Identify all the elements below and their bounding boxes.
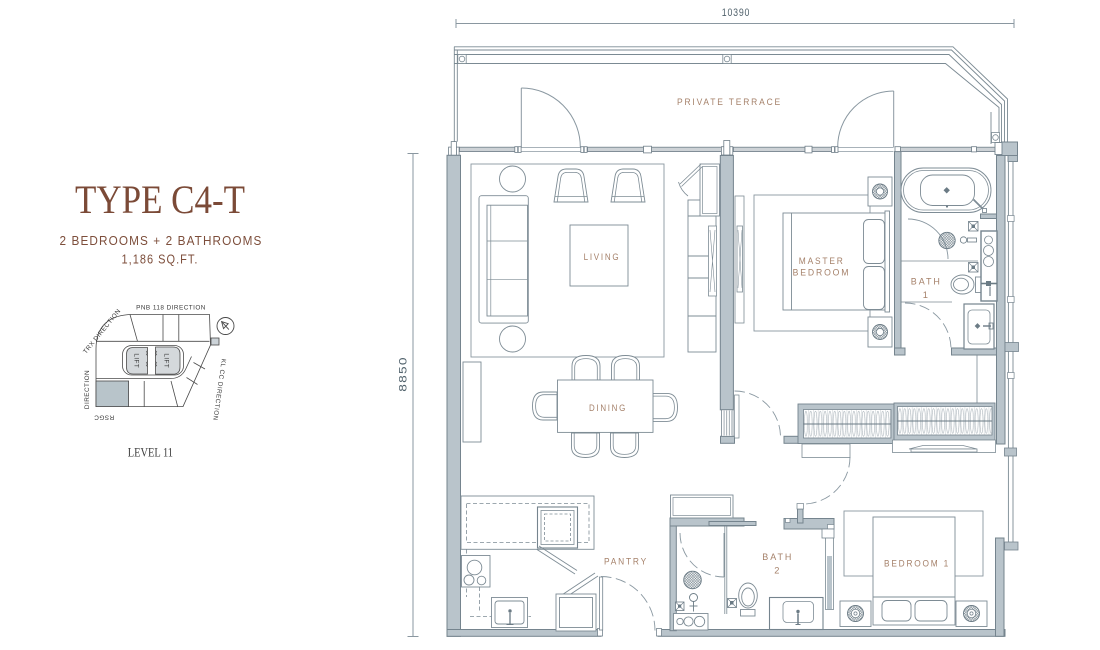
svg-text:BEDROOM: BEDROOM: [793, 268, 851, 278]
svg-text:2: 2: [774, 566, 781, 576]
svg-text:LIFT: LIFT: [162, 353, 169, 368]
svg-text:PRIVATE TERRACE: PRIVATE TERRACE: [677, 97, 782, 107]
svg-text:MASTER: MASTER: [799, 256, 845, 266]
svg-text:DIRECTION: DIRECTION: [84, 370, 91, 409]
svg-text:PNB 118 DIRECTION: PNB 118 DIRECTION: [136, 305, 206, 312]
svg-text:TYPE C4-T: TYPE C4-T: [75, 177, 245, 222]
svg-text:1,186 SQ.FT.: 1,186 SQ.FT.: [122, 252, 199, 267]
svg-text:LEVEL 11: LEVEL 11: [128, 446, 173, 460]
svg-text:8850: 8850: [398, 356, 410, 392]
svg-text:10390: 10390: [722, 7, 751, 19]
svg-text:RSGC: RSGC: [94, 414, 114, 421]
svg-text:BATH: BATH: [911, 277, 942, 287]
svg-text:BEDROOM 1: BEDROOM 1: [884, 559, 950, 569]
svg-text:LIFT: LIFT: [132, 353, 139, 368]
svg-text:1: 1: [923, 290, 930, 300]
svg-text:BATH: BATH: [762, 552, 793, 562]
svg-text:LIVING: LIVING: [584, 252, 621, 262]
svg-text:2 BEDROOMS + 2 BATHROOMS: 2 BEDROOMS + 2 BATHROOMS: [60, 233, 263, 248]
svg-text:DINING: DINING: [589, 403, 627, 413]
svg-text:PANTRY: PANTRY: [604, 556, 648, 566]
